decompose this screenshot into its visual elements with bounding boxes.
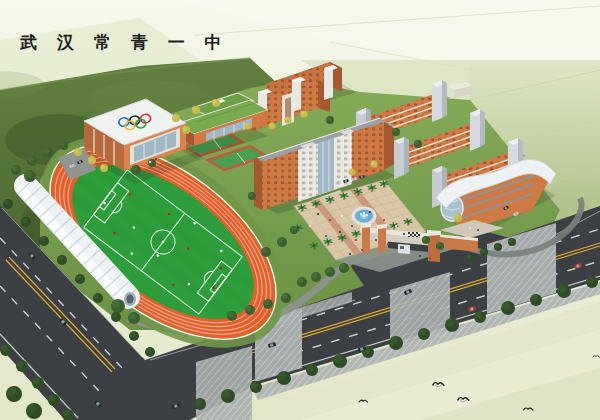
tree (306, 364, 318, 376)
tree (494, 243, 502, 251)
tree (277, 237, 287, 247)
tree (75, 274, 85, 284)
person (387, 243, 389, 245)
tree (269, 123, 276, 130)
person (309, 225, 311, 227)
campus-rendering: 武 汉 常 青 一 中 (0, 0, 600, 420)
tree (6, 386, 22, 402)
person (155, 158, 157, 160)
person (369, 211, 371, 213)
tree (182, 126, 190, 134)
tree (530, 294, 542, 306)
tree (422, 236, 430, 244)
tree (88, 156, 96, 164)
tree (16, 360, 28, 372)
tree (0, 344, 12, 356)
tree (43, 148, 53, 158)
tree (100, 164, 108, 172)
tree (325, 267, 335, 277)
tree (586, 276, 598, 288)
person (325, 235, 327, 237)
tree (480, 248, 488, 256)
person (355, 239, 357, 241)
person (149, 161, 151, 163)
tree (194, 398, 206, 410)
tree (297, 277, 307, 287)
tree (26, 403, 42, 419)
tree (263, 299, 273, 309)
fountain (353, 208, 376, 225)
tree (128, 312, 140, 324)
tree (145, 347, 155, 357)
tree (57, 255, 67, 265)
campus-rendering-svg: 武 汉 常 青 一 中 (0, 0, 600, 420)
tree (436, 242, 444, 250)
tree (212, 99, 220, 107)
person (469, 227, 471, 229)
tree (111, 312, 121, 322)
tree (261, 247, 271, 257)
tree (339, 263, 349, 273)
tree (129, 331, 139, 341)
tree (508, 238, 516, 246)
person (349, 253, 351, 255)
tree (248, 192, 256, 200)
tree (301, 111, 308, 118)
tree (221, 389, 235, 403)
gate-emblem (408, 232, 420, 237)
person (419, 255, 421, 257)
person (351, 225, 353, 227)
tree (111, 299, 125, 313)
tree (414, 140, 422, 148)
person (317, 213, 319, 215)
tree (48, 394, 60, 406)
person (339, 231, 341, 233)
tree (281, 293, 291, 303)
person (341, 215, 343, 217)
person (361, 249, 363, 251)
tree (349, 169, 356, 176)
tree (474, 311, 486, 323)
person (329, 219, 331, 221)
person (375, 239, 377, 241)
tree (277, 371, 291, 385)
tree (192, 106, 200, 114)
tree (501, 301, 515, 315)
tree (227, 311, 237, 321)
tree (326, 116, 334, 124)
tree (311, 272, 321, 282)
tree (389, 336, 403, 350)
tree (392, 128, 400, 136)
tree (445, 318, 459, 332)
tree (454, 214, 462, 222)
tree (418, 328, 430, 340)
tree (32, 377, 44, 389)
tree (21, 217, 31, 227)
person (395, 225, 397, 227)
person (383, 219, 385, 221)
tree (74, 148, 82, 156)
person (429, 257, 431, 259)
tree (148, 159, 156, 167)
tree (333, 354, 347, 368)
tree (466, 254, 474, 262)
tree (39, 236, 49, 246)
tree (557, 284, 571, 298)
person (403, 233, 405, 235)
tree (245, 305, 255, 315)
tree (24, 170, 36, 182)
tree (131, 165, 141, 175)
tree (93, 293, 103, 303)
tree (60, 142, 68, 150)
tree (11, 165, 21, 175)
tree (245, 123, 252, 130)
person (477, 229, 479, 231)
tree (3, 199, 13, 209)
tree (371, 161, 378, 168)
tree (285, 117, 292, 124)
campus-title: 武 汉 常 青 一 中 (19, 32, 229, 52)
tree (27, 156, 37, 166)
tree (250, 381, 262, 393)
tree (172, 114, 180, 122)
